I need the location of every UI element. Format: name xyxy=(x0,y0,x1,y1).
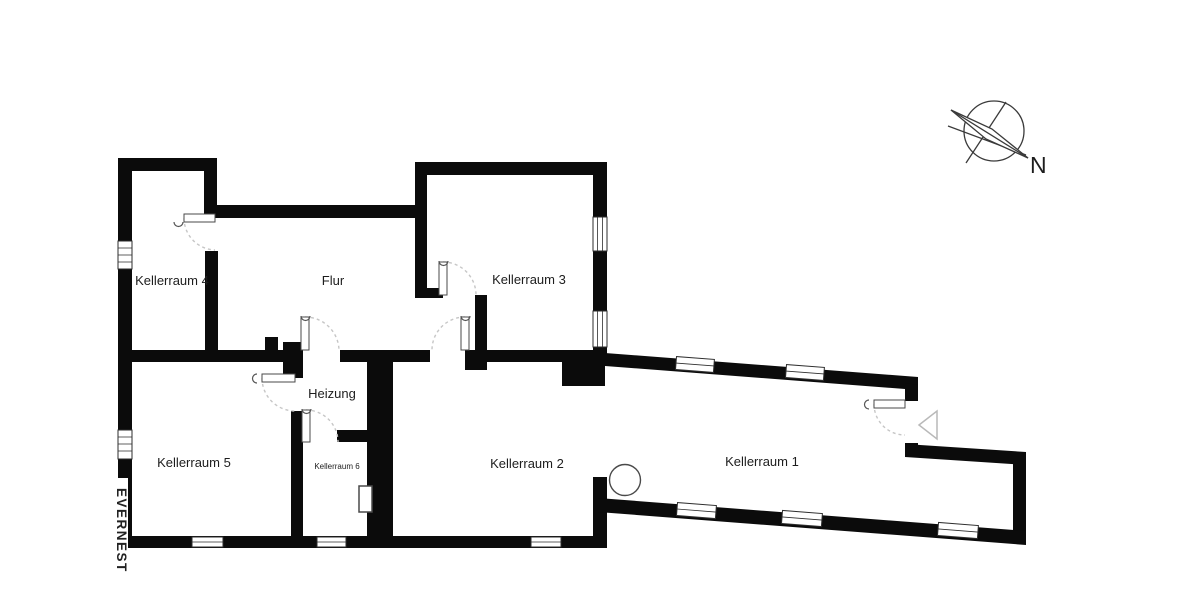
window xyxy=(593,311,607,347)
window xyxy=(786,365,825,381)
room-label-kellerraum-3: Kellerraum 3 xyxy=(492,272,566,287)
chimney-box xyxy=(359,486,372,512)
floor-plan-page: N Kellerraum 4 Flur Kellerraum 3 Heizung… xyxy=(0,0,1200,600)
door-kellerraum3 xyxy=(439,261,476,295)
room-label-kellerraum-6: Kellerraum 6 xyxy=(314,462,360,471)
window xyxy=(118,430,132,459)
window xyxy=(593,217,607,251)
watermark-text: EVERNEST xyxy=(114,488,129,573)
column-circle xyxy=(610,465,641,496)
window xyxy=(317,537,346,547)
room-label-kellerraum-1: Kellerraum 1 xyxy=(725,454,799,469)
door-entrance-kellerraum1 xyxy=(865,400,906,435)
window xyxy=(118,241,132,269)
walls xyxy=(118,158,1026,548)
watermark: EVERNEST xyxy=(104,478,129,588)
doors xyxy=(174,214,937,442)
room-label-flur: Flur xyxy=(322,273,345,288)
door-kellerraum4 xyxy=(174,214,215,250)
window xyxy=(192,537,223,547)
north-label: N xyxy=(1030,152,1047,178)
window xyxy=(677,503,717,519)
door-heizung xyxy=(301,316,339,350)
room-label-heizung: Heizung xyxy=(308,386,356,401)
door-kellerraum6 xyxy=(302,409,338,442)
room-label-kellerraum-2: Kellerraum 2 xyxy=(490,456,564,471)
compass-rose-icon: N xyxy=(948,101,1047,178)
window xyxy=(531,537,561,547)
entrance-arrow-icon xyxy=(919,411,937,439)
floor-plan: N Kellerraum 4 Flur Kellerraum 3 Heizung… xyxy=(0,0,1200,600)
window xyxy=(782,510,823,526)
door-kellerraum2 xyxy=(432,316,470,350)
room-label-kellerraum-5: Kellerraum 5 xyxy=(157,455,231,470)
window xyxy=(676,357,715,373)
door-kellerraum5 xyxy=(253,374,296,411)
room-label-kellerraum-4: Kellerraum 4 xyxy=(135,273,209,288)
window xyxy=(938,522,979,538)
